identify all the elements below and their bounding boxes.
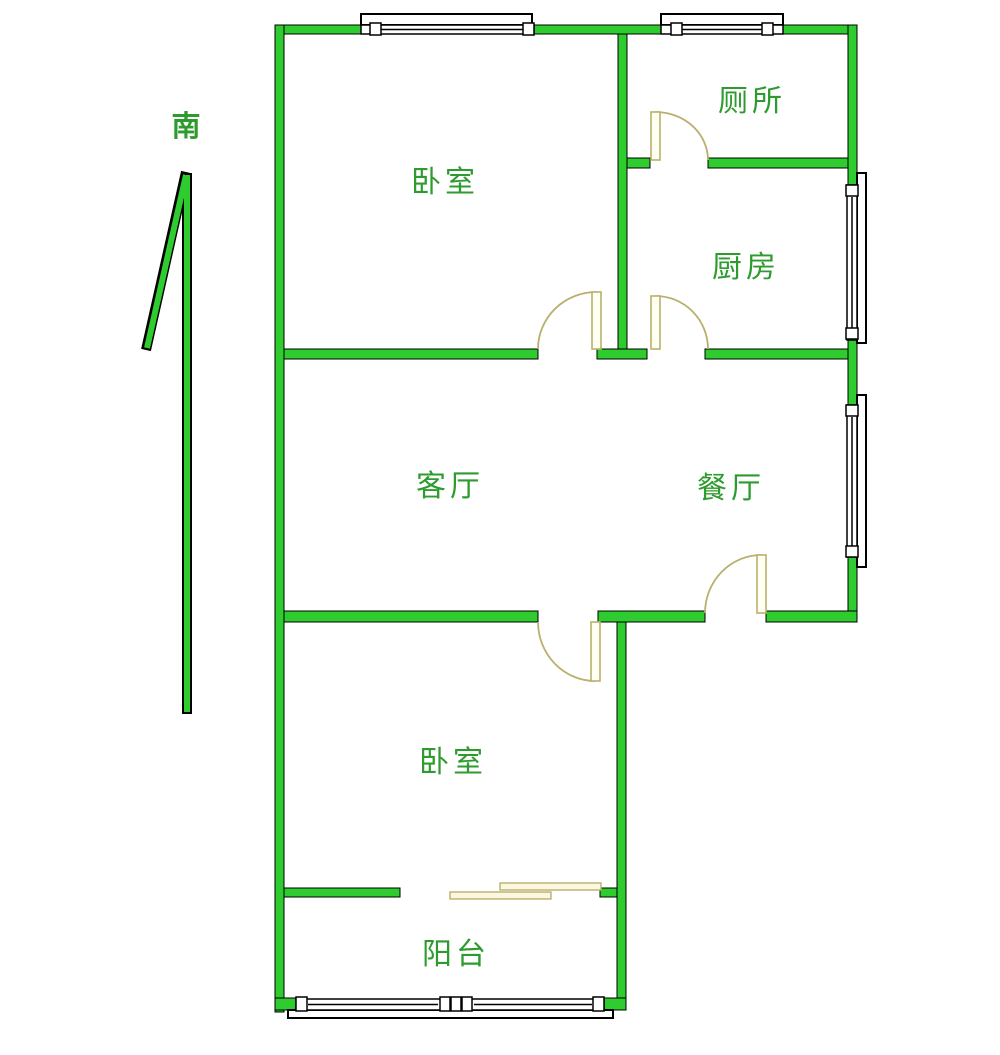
door-toilet (651, 112, 708, 160)
wall-middle-right-seg (705, 349, 848, 359)
door-bedroom-bottom (538, 622, 600, 681)
wall-balcony-top-right (600, 888, 617, 897)
compass-south-label: 南 (171, 109, 200, 143)
label-living-room: 客厅 (416, 469, 484, 504)
window-dining-right (846, 395, 866, 567)
door-bedroom-top (538, 292, 601, 349)
walls (275, 25, 857, 1012)
wall-toilet-bottom-right (708, 158, 848, 168)
floor-plan: 南 卧室 厕所 厨房 客厅 餐厅 卧室 阳台 (0, 0, 1000, 1055)
wall-lower-right-seg (766, 611, 857, 622)
label-bedroom-bottom: 卧室 (419, 745, 487, 780)
wall-bedroom2-right (617, 622, 626, 1005)
wall-lower-left-seg (284, 611, 538, 622)
label-bedroom-top: 卧室 (411, 165, 479, 200)
label-kitchen: 厨房 (712, 250, 780, 285)
door-balcony-sliding (450, 883, 601, 899)
window-toilet-top (661, 14, 783, 35)
wall-bedroom-kitchen-divider (618, 34, 627, 359)
room-labels: 卧室 厕所 厨房 客厅 餐厅 卧室 阳台 (411, 84, 786, 972)
wall-toilet-bottom-left (627, 158, 650, 168)
wall-right-upper-seg (848, 25, 857, 185)
label-dining-room: 餐厅 (697, 471, 765, 506)
door-kitchen (651, 296, 708, 349)
wall-right-mid-seg (848, 340, 857, 405)
label-toilet: 厕所 (718, 84, 786, 119)
wall-balcony-top-left (284, 888, 400, 897)
window-balcony-bottom (288, 997, 613, 1018)
wall-top-mid-seg (534, 25, 661, 34)
compass: 南 (146, 109, 201, 714)
north-south-arrow (146, 172, 187, 714)
wall-lower-center-seg (598, 611, 705, 622)
door-entry (705, 555, 766, 613)
wall-top-right-seg (783, 25, 857, 34)
wall-middle-left-seg (284, 349, 538, 359)
label-balcony: 阳台 (422, 937, 490, 972)
wall-middle-center-seg (597, 349, 647, 359)
wall-balcony-bottom-left-stub (275, 998, 296, 1010)
window-kitchen-right (846, 173, 866, 343)
wall-balcony-bottom-right-stub (604, 998, 626, 1010)
wall-top-left-seg (275, 25, 361, 34)
window-bedroom-top (361, 14, 534, 35)
floor-plan-canvas: 南 卧室 厕所 厨房 客厅 餐厅 卧室 阳台 (0, 0, 1000, 1055)
wall-left-exterior (275, 25, 284, 1012)
